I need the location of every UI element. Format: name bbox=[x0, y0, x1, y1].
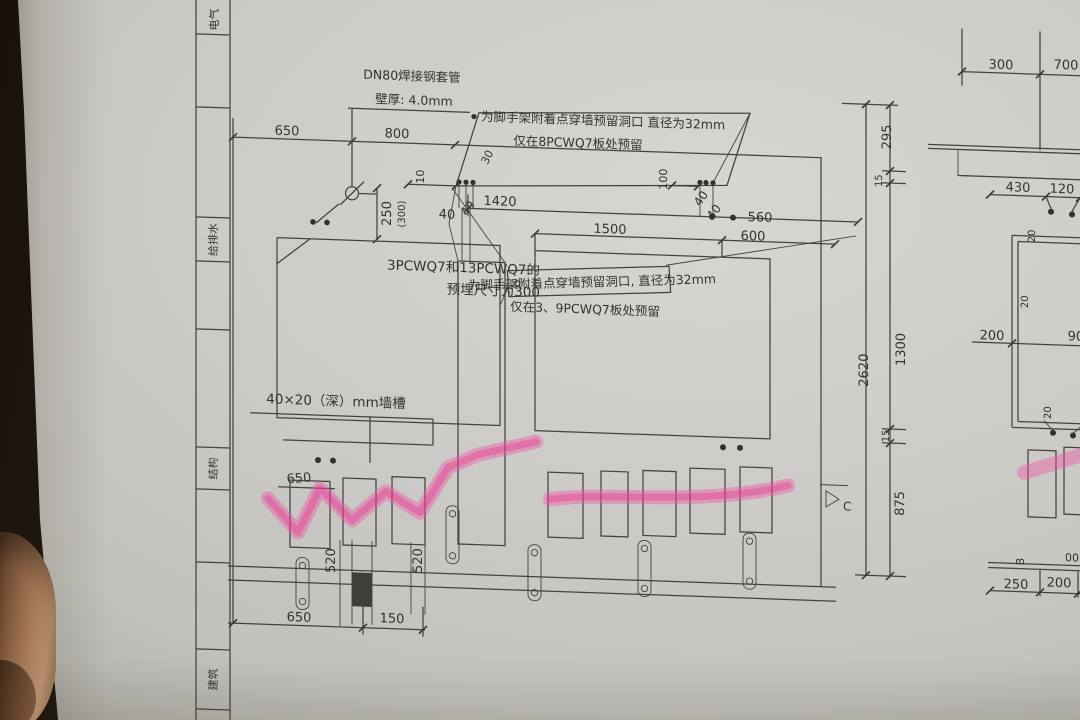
dim-1420: 1420 bbox=[483, 194, 516, 210]
dim-15-a: 15 bbox=[874, 174, 885, 187]
dim-chain-right: 295 15 1300 2620 15 875 bbox=[842, 99, 909, 580]
anchor-dot bbox=[1050, 430, 1056, 436]
slot-hole bbox=[743, 533, 756, 589]
dim-150-bottom: 150 bbox=[380, 611, 405, 627]
title-strip: 电气 给排水 结构 建筑 bbox=[196, 0, 230, 720]
hatched-panel bbox=[601, 471, 628, 537]
main-wall-outline bbox=[228, 118, 836, 644]
dim-40-right-1: 40 bbox=[691, 188, 711, 209]
blueprint-drawing: 电气 给排水 结构 建筑 650 800 DN80焊接钢套管 壁厚: 4.0mm bbox=[0, 0, 1080, 720]
scaffold-top-line2: 仅在8PCWQ7板处预留 bbox=[513, 133, 642, 153]
dim-650-bottom: 650 bbox=[287, 610, 312, 626]
dim-520-a: 520 bbox=[324, 548, 339, 573]
anchor-dot bbox=[1070, 432, 1076, 438]
top-right-dims: 300 700 430 120 bbox=[928, 27, 1080, 217]
dim-1500: 1500 bbox=[593, 222, 626, 238]
dim-100: 100 bbox=[657, 168, 670, 189]
hatched-panels bbox=[290, 255, 1080, 632]
pink-highlighter bbox=[268, 426, 1080, 559]
dim-00-fragment: 00 bbox=[1065, 551, 1079, 564]
strip-label-electrical: 电气 bbox=[207, 8, 221, 30]
dim-20-a: 20 bbox=[1027, 229, 1038, 242]
dim-900-rp: 900 bbox=[1068, 329, 1080, 345]
dn80-text-line2: 壁厚: 4.0mm bbox=[375, 91, 452, 109]
dim-40-left: 40 bbox=[439, 207, 456, 223]
dim-1300: 1300 bbox=[894, 333, 909, 367]
slot-hole bbox=[528, 544, 541, 600]
section-marker-b: B bbox=[1014, 558, 1027, 566]
dim-200-br: 200 bbox=[1047, 576, 1072, 592]
dim-430: 430 bbox=[1006, 180, 1031, 196]
anchor-dot bbox=[470, 180, 475, 185]
dim-875: 875 bbox=[893, 491, 908, 516]
strip-label-structure: 结构 bbox=[206, 457, 220, 479]
photo-of-blueprint: 电气 给排水 结构 建筑 650 800 DN80焊接钢套管 壁厚: 4.0mm bbox=[0, 0, 1080, 720]
anchor-dot bbox=[703, 180, 708, 185]
dim-clusters-small: 10 30 40 40 100 40 40 bbox=[404, 145, 724, 232]
right-partial-panel: 20 20 20 200 900 bbox=[972, 228, 1080, 440]
dim-250-300: 250 (300) bbox=[358, 184, 408, 245]
dim-560: 560 bbox=[748, 210, 773, 226]
dim-2620: 2620 bbox=[857, 353, 872, 387]
anchor-dot bbox=[730, 214, 736, 220]
strip-label-architecture: 建筑 bbox=[206, 668, 220, 690]
section-c-label: C bbox=[843, 499, 851, 513]
bottom-right-dims: 250 200 00 B bbox=[986, 548, 1080, 597]
anchor-dot bbox=[463, 180, 468, 185]
dim-30: 30 bbox=[479, 148, 497, 166]
dim-top-650-800: 650 800 bbox=[229, 121, 459, 149]
dim-295: 295 bbox=[880, 124, 895, 149]
dim-20-b: 20 bbox=[1020, 295, 1031, 308]
right-panel: 1500 600 bbox=[531, 220, 839, 455]
dim-1420-560: 1420 560 bbox=[464, 193, 862, 230]
dim-700-tr: 700 bbox=[1054, 58, 1079, 74]
anchor-dot bbox=[720, 444, 726, 450]
scaffold-top-line1: 为脚手架附着点穿墙预留洞口 直径为32mm bbox=[481, 109, 725, 133]
dim-120: 120 bbox=[1050, 182, 1075, 198]
dim-300-paren: (300) bbox=[397, 200, 408, 227]
dim-600: 600 bbox=[741, 229, 766, 245]
section-marker-c: C bbox=[820, 485, 851, 514]
anchor-dot bbox=[324, 220, 330, 226]
leader-bullet bbox=[471, 114, 476, 119]
dim-650-top: 650 bbox=[275, 124, 300, 140]
dim-520-b: 520 bbox=[411, 548, 426, 573]
hatched-column-center bbox=[458, 261, 505, 546]
slot-hole bbox=[446, 506, 459, 564]
anchor-dot bbox=[710, 180, 715, 185]
strip-label-plumbing: 给排水 bbox=[206, 223, 220, 256]
dim-250: 250 bbox=[380, 201, 395, 226]
dim-800-top: 800 bbox=[385, 126, 410, 142]
anchor-dot bbox=[310, 219, 316, 225]
anchor-dot bbox=[330, 458, 336, 464]
dim-15-b: 15 bbox=[881, 429, 892, 442]
anchor-dot bbox=[315, 457, 321, 463]
slot-hole bbox=[296, 557, 309, 609]
anchor-dot bbox=[737, 445, 743, 451]
dim-300-tr: 300 bbox=[989, 58, 1014, 74]
dim-10: 10 bbox=[414, 169, 427, 183]
dim-200-rp: 200 bbox=[980, 328, 1005, 344]
anchor-dot bbox=[1048, 209, 1054, 215]
slot-hole bbox=[638, 540, 651, 596]
anchor-dot bbox=[1069, 211, 1075, 217]
scaffold-note-top: 为脚手架附着点穿墙预留洞口 直径为32mm 仅在8PCWQ7板处预留 bbox=[449, 103, 750, 272]
dn80-text-line1: DN80焊接钢套管 bbox=[363, 67, 460, 85]
solid-block bbox=[352, 572, 372, 607]
scaffold-mid-line2: 仅在3、9PCWQ7板处预留 bbox=[510, 299, 660, 319]
wall-slot-text: 40×20（深）mm墙槽 bbox=[266, 391, 405, 412]
dim-20-c: 20 bbox=[1043, 406, 1054, 419]
dim-250-br: 250 bbox=[1004, 577, 1029, 593]
hatched-beam-band bbox=[958, 149, 1080, 179]
pink-highlighter-stroke bbox=[1024, 453, 1080, 475]
